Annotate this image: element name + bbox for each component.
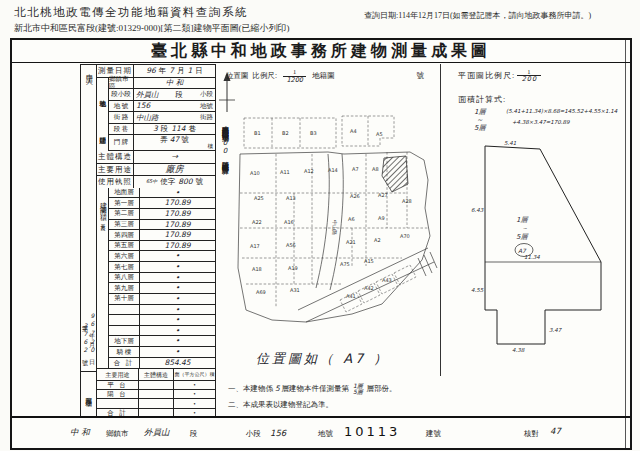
dim-mid: 11.34 <box>524 254 540 260</box>
receipt-year: 96 <box>89 312 96 328</box>
door-no-value: 47 <box>170 135 180 144</box>
floor-area-value: • <box>140 251 215 261</box>
annex-header: 主要用途 主體構造 面（平方公尺）積 <box>97 369 215 381</box>
footer-section-label: 段 <box>190 429 198 439</box>
floor-label <box>109 326 140 336</box>
parcel-label: A41 <box>346 293 356 299</box>
parcel-label: A27 <box>378 192 388 198</box>
parcel-label: A70 <box>400 233 410 239</box>
parcel-label: A22 <box>252 219 262 225</box>
license-suffix: 號 <box>196 178 204 186</box>
floor-row: • <box>109 326 215 337</box>
receipt-day: 20 <box>89 338 96 354</box>
alley-unit: 弄 <box>160 135 168 144</box>
annex-group-label: 附屬建物 <box>81 371 96 417</box>
dim-tab-right: 3.47 <box>549 327 563 333</box>
year-unit: 年 <box>159 67 167 75</box>
annex-row: 陽 台 • <box>97 390 215 399</box>
floor-label: 第三層 <box>109 220 140 230</box>
table-main: 測量日期 96年 7月 1日 基地地號 鄉鎮市區 中 和 <box>97 65 215 417</box>
total-label: 合 計 <box>109 358 140 369</box>
area-group-label-col: 建築面積 （平方公尺） <box>97 188 109 368</box>
note1-mid: 層建物本件僅測量第 <box>282 384 350 393</box>
applicant-label: 申請人 <box>85 65 92 184</box>
sec-value: 3 <box>153 125 158 133</box>
license-word: 使字 <box>160 178 175 186</box>
parcel-label: A14 <box>328 167 338 173</box>
annex-usage-header: 主要用途 <box>97 369 139 380</box>
floor-label <box>109 315 140 325</box>
survey-info-table: 申請人 字第3762號 96年7月20日 附屬建物 測量日期 9 <box>80 64 216 418</box>
section-row: 段小段 外員山 段 小段 <box>109 89 215 101</box>
note1-floor-to: 5層 <box>353 389 363 395</box>
annex-section: 主要用途 主體構造 面（平方公尺）積 平 台 • <box>97 368 215 417</box>
subsection-suffix: 小段 <box>200 91 213 98</box>
parcel-label: A7 <box>352 166 359 172</box>
floor-area-value: 170.89 <box>140 198 215 208</box>
note1-floor-count: 5 <box>275 384 280 393</box>
footer-parcel-number: 10113 <box>344 424 400 439</box>
floor-row: 地面層 • <box>109 188 215 199</box>
location-map-caption: 位置圖如（ A7 ） <box>256 350 389 368</box>
plan-mark-label: A7 <box>518 247 527 254</box>
lane-value: 114 <box>171 125 185 133</box>
floor-area-value: • <box>140 347 215 357</box>
floor-label: 地下層 <box>109 336 140 346</box>
parcel-label: A17 <box>250 243 260 249</box>
section-value: 外員山 <box>136 91 159 99</box>
annex-row-value: • <box>174 381 215 389</box>
parcel-label: A10 <box>250 170 260 176</box>
floor-rows: 地面層 • 第一層 170.89 第二層 <box>109 188 215 358</box>
parcel-label: A18 <box>252 266 262 272</box>
calc-floor-range: 1層 ～ 5層 <box>474 108 485 132</box>
floor-area-section: 建築面積 （平方公尺） 地面層 • <box>97 188 215 368</box>
identification-section: 測量日期 96年 7月 1日 基地地號 鄉鎮市區 中 和 <box>97 65 215 188</box>
receipt-date: 96年7月20日 <box>89 312 95 355</box>
parcel-label: A75 <box>340 261 350 267</box>
query-date-note: 查詢日期:114年12月17日(如需登記謄本，請向地政事務所申請。) <box>364 10 591 21</box>
print-subtitle: 新北市中和區民富段(建號:01329-000)[第二類]建物平面圖(已縮小列印) <box>14 22 289 35</box>
section-label: 段小段 <box>109 89 134 100</box>
receipt-no-suffix: 號 <box>82 354 88 355</box>
note-1: 一、本建物係 5 層建物本件僅測量第 1層 5層 層部份。 <box>228 381 476 397</box>
door-label: 門 牌 <box>109 135 134 150</box>
floor-label: 第十層 <box>109 294 140 304</box>
floor-unit: 樓 <box>208 144 214 150</box>
floor-row: 第四層 170.89 <box>109 230 215 241</box>
building-outline-plan: 5.41 6.43 11.34 4.55 3.47 4.38 1層 ～ 5層 A… <box>470 140 632 354</box>
location-map-title: 位置圖 <box>226 71 249 81</box>
parcel-label: A11 <box>280 169 290 175</box>
footer-subsection-label: 小段 <box>246 429 261 439</box>
area-unit-label: （平方公尺） <box>100 218 105 224</box>
annex-row: • <box>97 399 215 408</box>
section-suffix: 段 <box>176 91 184 99</box>
parcel-label: 地 號 <box>109 101 134 112</box>
street-suffix: 街路 <box>200 114 213 121</box>
site-parcel-group: 基地地號 鄉鎮市區 中 和 段小段 外員山 段 <box>97 78 215 113</box>
door-plate-group: 建物門牌 街 路 中山路 街路 段 巷 <box>97 112 215 151</box>
floor-row: 地下層 • <box>109 336 215 347</box>
day-unit: 日 <box>89 354 95 355</box>
floor-area-value: • <box>140 262 215 272</box>
door-number-line: 弄 47 號 <box>160 136 188 144</box>
floor-area-value: • <box>140 294 215 304</box>
seclane-label: 段 巷 <box>109 124 134 135</box>
annex-row-structure <box>139 399 174 407</box>
floor-area-value: 170.89 <box>140 220 215 230</box>
license-row: 使用執照 65中 使字 800 號 <box>97 176 215 188</box>
floor-label: 第八層 <box>109 273 140 283</box>
floor-row: 第八層 • <box>109 273 215 284</box>
parcel-label: A31 <box>290 287 300 293</box>
floor-area-value: • <box>140 273 215 283</box>
floor-row: 第九層 • <box>109 283 215 294</box>
parcel-label: A13 <box>286 195 296 201</box>
floor-row: 第五層 170.89 <box>109 241 215 252</box>
floor-area-value: 170.89 <box>140 241 215 251</box>
street-row: 街 路 中山路 街路 <box>109 112 215 124</box>
parcel-label: A15 <box>364 258 374 264</box>
floor-row: • <box>109 305 215 316</box>
plan-scale-label: 平面圖比例尺: <box>458 70 515 81</box>
annex-row-label: 陽 台 <box>97 390 139 398</box>
plan-scale: 平面圖比例尺: 1 200 <box>458 68 543 83</box>
area-calc-label: 面積計算式: <box>458 94 506 105</box>
plan-scale-denominator: 200 <box>522 76 537 83</box>
parcel-label: A25 <box>254 195 264 201</box>
annex-row-structure <box>139 390 174 398</box>
parcel-label: A12 <box>304 168 314 174</box>
floor-area-value: • <box>140 315 215 325</box>
sec-unit: 段 <box>161 125 169 133</box>
day-unit: 日 <box>195 67 203 75</box>
annex-row: 平 台 • <box>97 381 215 390</box>
footer-parcel-label: 地號 <box>318 429 333 439</box>
usage-label: 主要用途 <box>97 164 134 176</box>
map-scale-label: 比例尺: <box>253 71 278 81</box>
township-row: 鄉鎮市區 中 和 <box>109 78 215 90</box>
dim-tab-bottom: 4.38 <box>512 347 525 353</box>
floor-row: • <box>109 315 215 326</box>
parcel-label: A43 <box>382 277 392 283</box>
system-title: 北北桃地政電傳全功能地籍資料查詢系統 <box>14 5 248 20</box>
footer-township-label: 鄉鎮市 <box>106 429 129 439</box>
parcel-label: A21 <box>346 239 356 245</box>
floor-area-value: 170.89 <box>140 209 215 219</box>
month-unit: 月 <box>177 67 185 75</box>
form-frame: 臺北縣中和地政事務所建物測量成果圖 申請人 字第3762號 96年7月20日 附… <box>10 38 632 450</box>
floor-label: 第五層 <box>109 241 140 251</box>
floor-row: 第六層 • <box>109 251 215 262</box>
area-formula-line1: (5.41+11.34)×8.68=145.52+4.55×1.14 <box>506 108 617 114</box>
form-title: 臺北縣中和地政事務所建物測量成果圖 <box>12 40 630 63</box>
floor-area-value: • <box>140 305 215 315</box>
floor-area-value: • <box>140 336 215 346</box>
footer-check-label: 核對 <box>524 429 539 439</box>
table-gutter: 申請人 字第3762號 96年7月20日 附屬建物 <box>81 65 97 417</box>
annex-row-label <box>97 399 139 407</box>
note-2: 二、本成果表以建物登記為準。 <box>228 397 476 413</box>
floor-label: 地面層 <box>109 188 140 198</box>
dim-left-lower: 4.55 <box>471 287 484 293</box>
parcel-label: A69 <box>256 289 266 295</box>
floor-area-value: • <box>140 188 215 198</box>
parcel-label: B2 <box>282 130 289 136</box>
area-formula-line2: +4.38×3.47=170.89 <box>512 119 570 125</box>
parcel-label: A19 <box>288 265 298 271</box>
survey-date-value: 96年 7月 1日 <box>134 65 215 77</box>
plan-tilde: ～ <box>522 225 528 231</box>
plan-floor-to: 5層 <box>516 233 528 241</box>
usage-value: 廠房 <box>166 165 184 174</box>
footer-township-value: 中 和 <box>70 427 90 439</box>
survey-day: 1 <box>188 67 193 75</box>
receipt-no-value: 3762 <box>82 322 89 354</box>
section-lane-row: 段 巷 3段 114巷 <box>109 124 215 136</box>
calc-floor-from: 1層 <box>474 108 485 116</box>
scale-denominator: 1200 <box>286 77 303 84</box>
area-group-label: 建築面積 <box>99 196 106 212</box>
floor-row: 第一層 170.89 <box>109 198 215 209</box>
door-group-label: 建物門牌 <box>97 112 109 151</box>
tilde-mark: ～ <box>474 116 485 124</box>
footer-section-value: 外員山 <box>144 427 170 439</box>
door-number-row: 門 牌 弄 47 號 樓 <box>109 135 215 151</box>
derivation-note: 本建物平面圖及建物面積係依使用執照竣字第800號設計圖或竣工平面圖轉繪計算 <box>220 120 230 414</box>
note1-post: 層部份。 <box>367 384 397 393</box>
floor-label: 第七層 <box>109 262 140 272</box>
township-value: 中 和 <box>166 79 183 87</box>
parcel-label: A9 <box>378 215 385 221</box>
footer-build-label: 建號 <box>426 429 441 439</box>
parcel-label: A16 <box>284 219 294 225</box>
license-label: 使用執照 <box>97 176 134 188</box>
floor-label: 第六層 <box>109 251 140 261</box>
parcel-suffix: 地號 <box>200 103 213 110</box>
lane-unit: 巷 <box>189 125 197 133</box>
floor-label: 第四層 <box>109 230 140 240</box>
annex-area-header: 面（平方公尺）積 <box>174 369 215 380</box>
parcel-label: B3 <box>310 130 317 136</box>
floor-row: 第二層 170.89 <box>109 209 215 220</box>
floor-label: 騎 樓 <box>109 347 140 357</box>
floor-row: 第七層 • <box>109 262 215 273</box>
annex-structure-header: 主體構造 <box>139 369 174 380</box>
license-no: 800 <box>178 178 192 186</box>
total-row: 合 計 854.45 <box>109 358 215 369</box>
derivation-note-number: 800 <box>221 130 229 156</box>
survey-year: 96 <box>146 67 156 75</box>
floor-row: 騎 樓 • <box>109 347 215 358</box>
parcel-label: A42 <box>364 285 374 291</box>
parcel-label: A28 <box>402 198 412 204</box>
parcel-label: A56 <box>286 242 296 248</box>
usage-row: 主要用途 廠房 <box>97 164 215 177</box>
site-group-label: 基地地號 <box>97 78 109 113</box>
street-label: 街 路 <box>109 112 134 123</box>
floor-label: 第二層 <box>109 209 140 219</box>
structure-row: 主體構造 → <box>97 151 215 164</box>
annex-row-structure <box>139 381 174 389</box>
annex-rows: 平 台 • 陽 台 • <box>97 381 215 417</box>
map-scale-fraction: 1 1200 <box>283 68 306 83</box>
derivation-note-top: 本建物平面圖及建物面積係依使用執照竣字第 <box>221 120 229 130</box>
total-value: 854.45 <box>164 359 190 367</box>
parcel-label: A5 <box>376 131 383 137</box>
footer-subsection-value: 156 <box>270 428 286 438</box>
floor-label <box>109 305 140 315</box>
annex-row-value: • <box>174 399 215 407</box>
parcel-label: A8 <box>372 166 379 172</box>
receipt-number: 字第3762號 <box>82 320 88 355</box>
plan-floor-from: 1層 <box>516 216 528 224</box>
footer-check-value: 47 <box>550 426 561 436</box>
parcel-label: A6 <box>348 216 355 222</box>
license-prefix: 65中 <box>146 179 157 184</box>
location-map-header: 位置圖 比例尺: 1 1200 地籍圖 號 <box>226 67 440 85</box>
parcel-no-row: 地 號 156 地號 <box>109 101 215 113</box>
cadastral-sheet-label: 地籍圖 <box>312 71 335 81</box>
panel-divider <box>440 64 441 376</box>
parcel-label: A4 <box>350 128 357 134</box>
subject-parcel-hatched <box>382 156 408 192</box>
street-value: 中山路 <box>136 114 159 122</box>
parcel-value: 156 <box>136 102 150 110</box>
floor-row: 第三層 170.89 <box>109 220 215 231</box>
calc-floor-to: 5層 <box>474 124 485 132</box>
parcel-label: B1 <box>254 130 261 136</box>
floor-area-value: 170.89 <box>140 230 215 240</box>
floor-row: 第十層 • <box>109 294 215 305</box>
derivation-note-bottom: 號設計圖或竣工平面圖轉繪計算 <box>221 156 229 163</box>
note1-pre: 一、本建物係 <box>228 384 273 393</box>
plan-scale-fraction: 1 200 <box>517 68 541 83</box>
floor-area-value: • <box>140 326 215 336</box>
floor-label: 第九層 <box>109 283 140 293</box>
notes-block: 一、本建物係 5 層建物本件僅測量第 1層 5層 層部份。 二、本成果表以建物登… <box>228 381 476 413</box>
dim-top: 5.41 <box>504 140 517 146</box>
parcel-label: A26 <box>350 193 360 199</box>
township-label: 鄉鎮市區 <box>109 78 134 89</box>
note1-floor-range: 1層 5層 <box>353 383 363 396</box>
annex-row-value: • <box>174 390 215 398</box>
footer-strip: 中 和 鄉鎮市 外員山 段 小段 156 地號 10113 建號 核對 47 <box>12 416 630 448</box>
door-no-unit: 號 <box>181 135 189 144</box>
annex-row-label: 平 台 <box>97 381 139 389</box>
dim-left-upper: 6.43 <box>471 207 484 213</box>
sheet-no-label: 號 <box>417 71 425 81</box>
floor-area-value: • <box>140 283 215 293</box>
road-label: 中山路 <box>332 220 338 235</box>
receipt-month: 7 <box>89 329 96 337</box>
cadastral-map: 中山路 B1B2B3A4A5A10A11A12A14A7A8A25A13A26A… <box>232 108 440 348</box>
receipt-number-strip: 字第3762號 96年7月20日 <box>82 184 95 371</box>
structure-value: → <box>171 153 178 161</box>
survey-month: 7 <box>169 67 174 75</box>
parcel-label: A2 <box>374 237 381 243</box>
floor-label: 第一層 <box>109 198 140 208</box>
structure-label: 主體構造 <box>97 151 134 163</box>
